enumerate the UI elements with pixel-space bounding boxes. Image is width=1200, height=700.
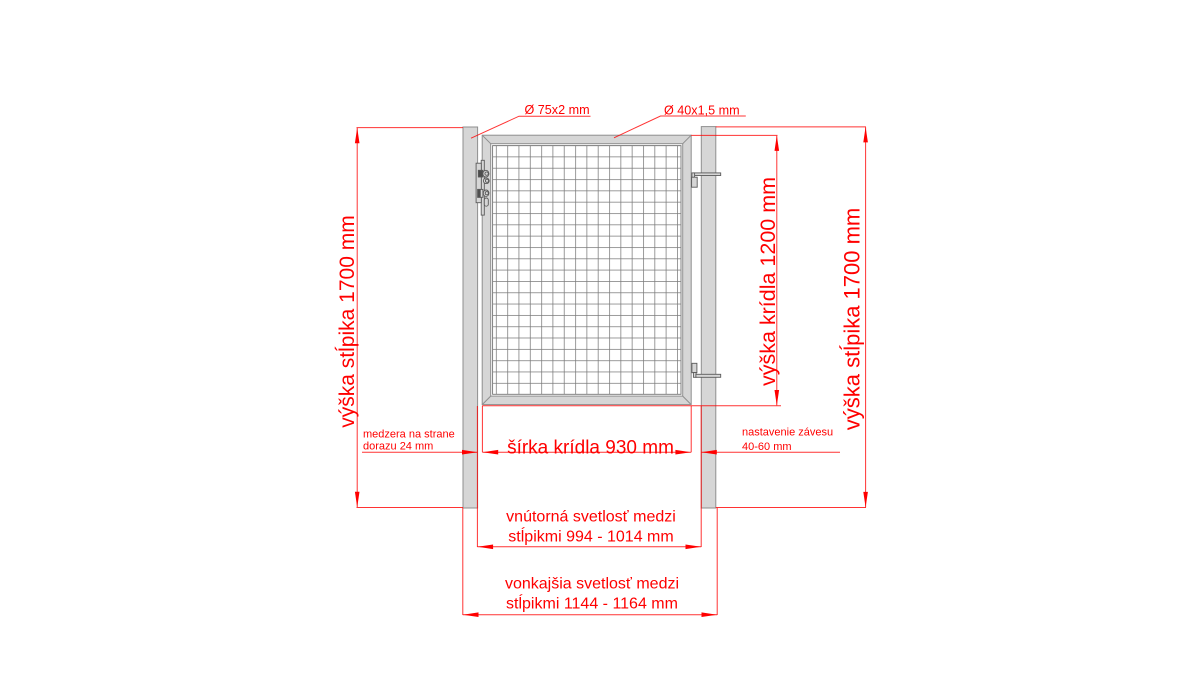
svg-text:stĺpikmi 994 - 1014 mm: stĺpikmi 994 - 1014 mm xyxy=(508,526,673,545)
svg-text:Ø 40x1,5 mm: Ø 40x1,5 mm xyxy=(664,104,740,118)
svg-text:40-60 mm: 40-60 mm xyxy=(742,441,792,453)
svg-text:vonkajšia svetlosť medzi: vonkajšia svetlosť medzi xyxy=(505,575,679,592)
svg-text:dorazu 24 mm: dorazu 24 mm xyxy=(363,441,433,453)
svg-text:vnútorná svetlosť medzi: vnútorná svetlosť medzi xyxy=(506,508,676,525)
svg-text:Ø 75x2 mm: Ø 75x2 mm xyxy=(525,103,590,117)
svg-text:výška stĺpika 1700 mm: výška stĺpika 1700 mm xyxy=(335,215,359,427)
svg-text:výška krídla 1200 mm: výška krídla 1200 mm xyxy=(756,177,780,386)
svg-text:šírka krídla 930 mm: šírka krídla 930 mm xyxy=(507,437,674,458)
svg-text:nastavenie závesu: nastavenie závesu xyxy=(742,427,833,439)
svg-text:výška stĺpika 1700 mm: výška stĺpika 1700 mm xyxy=(840,208,865,431)
svg-text:medzera na strane: medzera na strane xyxy=(363,428,455,440)
svg-text:stĺpikmi 1144 - 1164 mm: stĺpikmi 1144 - 1164 mm xyxy=(506,593,678,612)
